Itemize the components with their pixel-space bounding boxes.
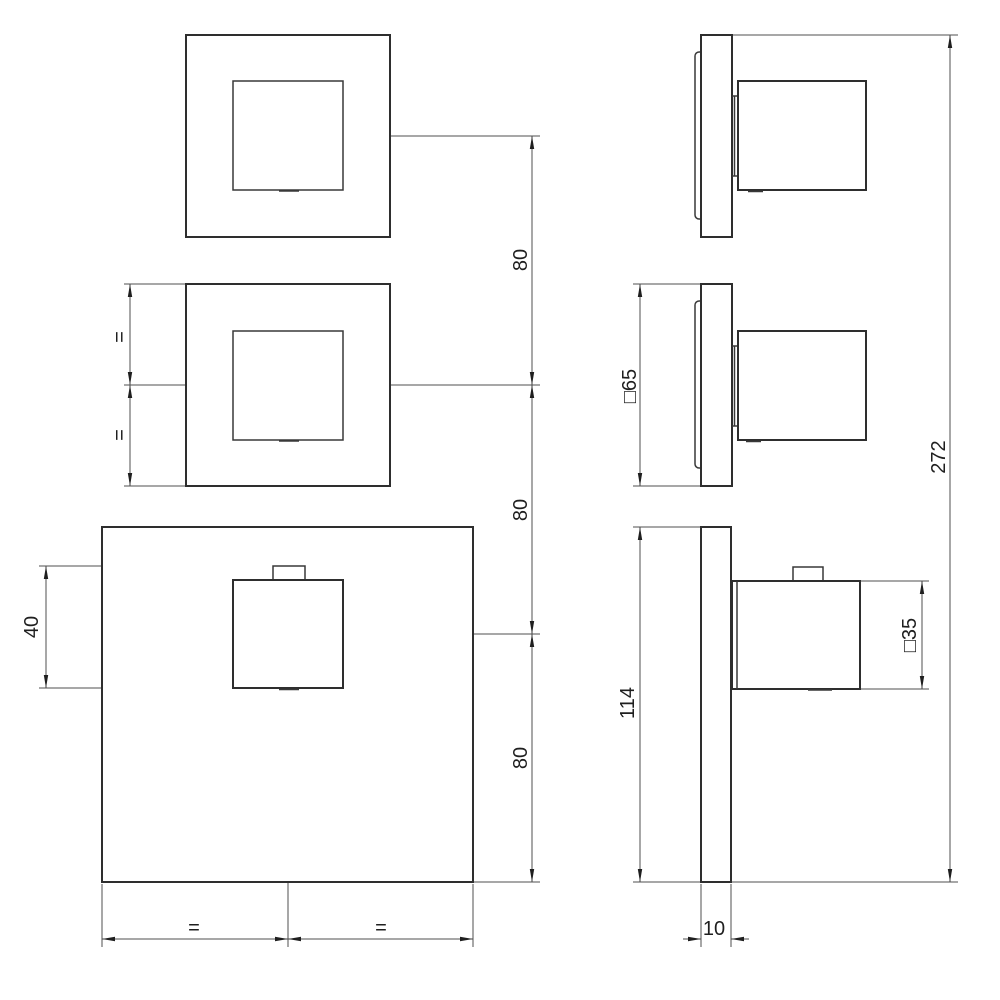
arrow: [128, 385, 132, 398]
dim-label-equal-height-upper: =: [109, 331, 131, 343]
arrow: [530, 136, 534, 149]
dim-label-handle-height: 40: [21, 616, 43, 638]
side3-handle-tab: [793, 567, 823, 581]
arrow: [128, 473, 132, 486]
dim-label-equal-height-lower: =: [109, 429, 131, 441]
dim-label-equal-width-left: =: [188, 917, 200, 939]
arrow: [948, 35, 952, 48]
arrow: [128, 372, 132, 385]
plate1-handle-face: [233, 81, 343, 190]
arrow: [731, 937, 744, 941]
arrow: [688, 937, 701, 941]
arrow: [530, 621, 534, 634]
drawing-canvas: 80 80 80 40 = = □65 □35 114 272 10 = =: [0, 0, 1000, 1000]
arrow: [460, 937, 473, 941]
side3-knob: [732, 581, 860, 689]
arrow: [638, 473, 642, 486]
arrow: [948, 869, 952, 882]
arrow: [530, 634, 534, 647]
dim-label-spacing-upper: 80: [510, 249, 532, 271]
arrow: [44, 566, 48, 579]
front-view-large-plate: [102, 527, 473, 882]
side-view-small-plate-1: [695, 35, 866, 237]
arrow: [275, 937, 288, 941]
arrow: [920, 581, 924, 594]
dim-label-handle-square: □35: [899, 618, 921, 652]
arrow: [530, 869, 534, 882]
side2-knob: [738, 331, 866, 440]
arrow: [288, 937, 301, 941]
arrow: [128, 284, 132, 297]
arrow: [638, 527, 642, 540]
front-view-small-plate-2: [186, 284, 390, 486]
arrow: [530, 385, 534, 398]
dim-label-spacing-middle: 80: [510, 499, 532, 521]
front-view-small-plate-1: [186, 35, 390, 237]
arrow: [638, 284, 642, 297]
arrow: [102, 937, 115, 941]
side1-knob: [738, 81, 866, 190]
dim-label-equal-width-right: =: [375, 917, 387, 939]
plate3-handle-tab: [273, 566, 305, 580]
arrow: [920, 676, 924, 689]
dim-label-plate-depth: 10: [703, 918, 725, 940]
arrow: [44, 675, 48, 688]
side2-plate-profile: [701, 284, 732, 486]
arrow: [530, 372, 534, 385]
side-view-large-plate: [701, 527, 860, 882]
dim-label-overall-height: 272: [928, 440, 950, 473]
dim-label-spacing-lower: 80: [510, 747, 532, 769]
plate2-handle-face: [233, 331, 343, 440]
side3-plate-profile: [701, 527, 731, 882]
plate3-handle-face: [233, 580, 343, 688]
dim-label-small-plate-square: □65: [619, 369, 641, 403]
side-view-small-plate-2: [695, 284, 866, 486]
arrow: [638, 869, 642, 882]
dim-label-large-plate-height: 114: [617, 687, 639, 719]
side1-plate-profile: [701, 35, 732, 237]
technical-drawing: 80 80 80 40 = = □65 □35 114 272 10 = =: [0, 0, 1000, 1000]
